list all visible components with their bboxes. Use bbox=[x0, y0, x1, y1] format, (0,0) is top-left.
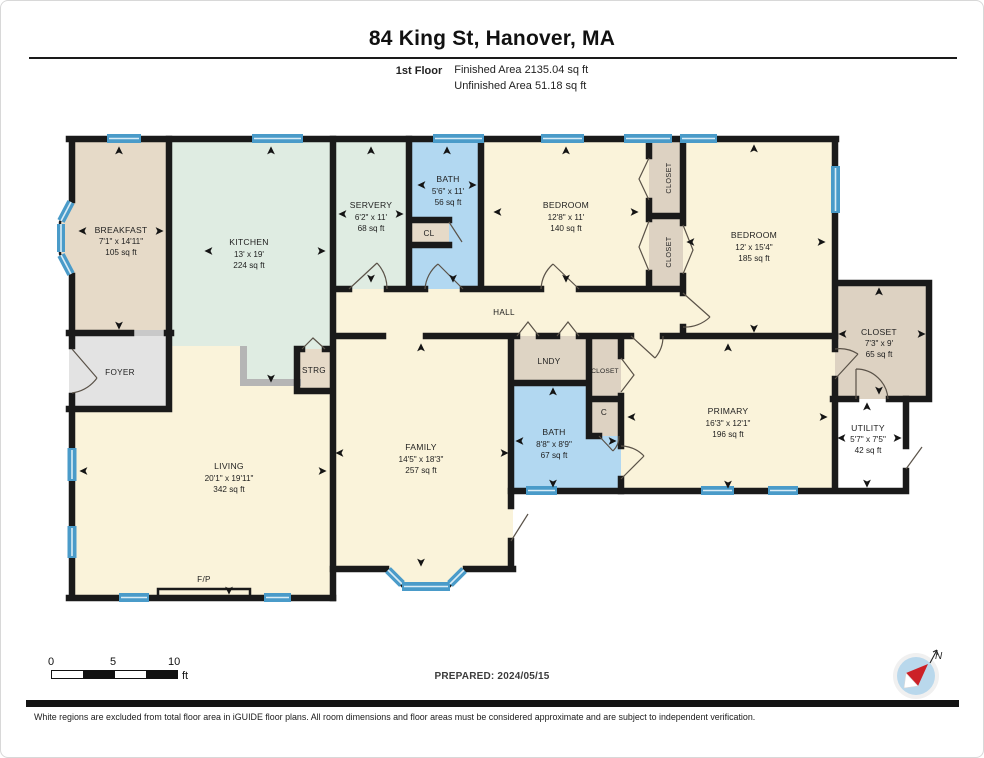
room-utility bbox=[835, 399, 906, 491]
room-fills bbox=[60, 139, 929, 598]
label-strg: STRG bbox=[302, 366, 326, 375]
area-bedroom1: 140 sq ft bbox=[550, 224, 582, 233]
dims-bath2: 8'8" x 8'9" bbox=[536, 440, 572, 449]
dims-bedroom1: 12'8" x 11' bbox=[548, 213, 585, 222]
area-bath1: 56 sq ft bbox=[435, 198, 463, 207]
label-bath2: BATH bbox=[542, 427, 565, 437]
label-living: LIVING bbox=[214, 461, 244, 471]
area-bedroom2: 185 sq ft bbox=[738, 254, 770, 263]
label-kitchen: KITCHEN bbox=[229, 237, 268, 247]
label-lndy: LNDY bbox=[537, 357, 560, 366]
area-living: 342 sq ft bbox=[213, 485, 245, 494]
compass-north-label: N bbox=[935, 651, 943, 662]
label-utility: UTILITY bbox=[851, 423, 885, 433]
floor-plan-page: 84 King St, Hanover, MA 1st Floor Finish… bbox=[0, 0, 984, 758]
area-utility: 42 sq ft bbox=[855, 446, 883, 455]
room-c-closet bbox=[589, 399, 621, 436]
area-breakfast: 105 sq ft bbox=[105, 248, 137, 257]
label-bedroom2: BEDROOM bbox=[731, 230, 777, 240]
disclaimer-text: White regions are excluded from total fl… bbox=[34, 712, 954, 722]
label-breakfast: BREAKFAST bbox=[95, 225, 148, 235]
room-breakfast bbox=[69, 139, 169, 333]
dims-servery: 6'2" x 11' bbox=[355, 213, 388, 222]
label-closet-bottom: CLOSET bbox=[664, 236, 673, 267]
dims-primary: 16'3" x 12'1" bbox=[706, 419, 751, 428]
compass-icon: N bbox=[887, 645, 949, 703]
label-hall: HALL bbox=[493, 308, 515, 317]
label-servery: SERVERY bbox=[350, 200, 393, 210]
room-bath1 bbox=[409, 139, 481, 289]
scale-tick-0: 0 bbox=[48, 656, 54, 668]
area-primary: 196 sq ft bbox=[712, 430, 744, 439]
label-foyer: FOYER bbox=[105, 368, 135, 377]
family-corner-door bbox=[511, 514, 528, 541]
dims-closet-right: 7'3" x 9' bbox=[865, 339, 894, 348]
prepared-date: PREPARED: 2024/05/15 bbox=[1, 671, 983, 682]
label-bedroom1: BEDROOM bbox=[543, 200, 589, 210]
footer-divider bbox=[26, 700, 959, 707]
label-c: C bbox=[601, 408, 607, 417]
dims-family: 14'5" x 18'3" bbox=[399, 455, 444, 464]
label-fp: F/P bbox=[197, 575, 211, 584]
label-primary: PRIMARY bbox=[708, 406, 749, 416]
area-kitchen: 224 sq ft bbox=[233, 261, 265, 270]
dims-utility: 5'7" x 7'5" bbox=[850, 435, 886, 444]
dims-kitchen: 13' x 19' bbox=[234, 250, 264, 259]
label-bath1: BATH bbox=[436, 174, 459, 184]
area-bath2: 67 sq ft bbox=[541, 451, 569, 460]
dims-living: 20'1" x 19'11" bbox=[205, 474, 254, 483]
label-closet-top: CLOSET bbox=[664, 162, 673, 193]
dims-breakfast: 7'1" x 14'11" bbox=[99, 237, 143, 246]
label-family: FAMILY bbox=[405, 442, 436, 452]
utility-exterior-door bbox=[906, 447, 922, 469]
scale-tick-5: 5 bbox=[110, 656, 116, 668]
dims-bedroom2: 12' x 15'4" bbox=[735, 243, 773, 252]
label-cl: CL bbox=[423, 229, 434, 238]
area-closet-right: 65 sq ft bbox=[866, 350, 894, 359]
scale-tick-10: 10 bbox=[168, 656, 180, 668]
floor-plan: BREAKFAST 7'1" x 14'11" 105 sq ft KITCHE… bbox=[1, 1, 984, 758]
label-closet-mid: CLOSET bbox=[591, 368, 619, 375]
dims-bath1: 5'6" x 11' bbox=[432, 187, 465, 196]
breakfast-threshold bbox=[131, 330, 167, 336]
area-family: 257 sq ft bbox=[405, 466, 437, 475]
area-servery: 68 sq ft bbox=[358, 224, 386, 233]
room-family bbox=[333, 336, 513, 569]
label-closet-right: CLOSET bbox=[861, 327, 897, 337]
